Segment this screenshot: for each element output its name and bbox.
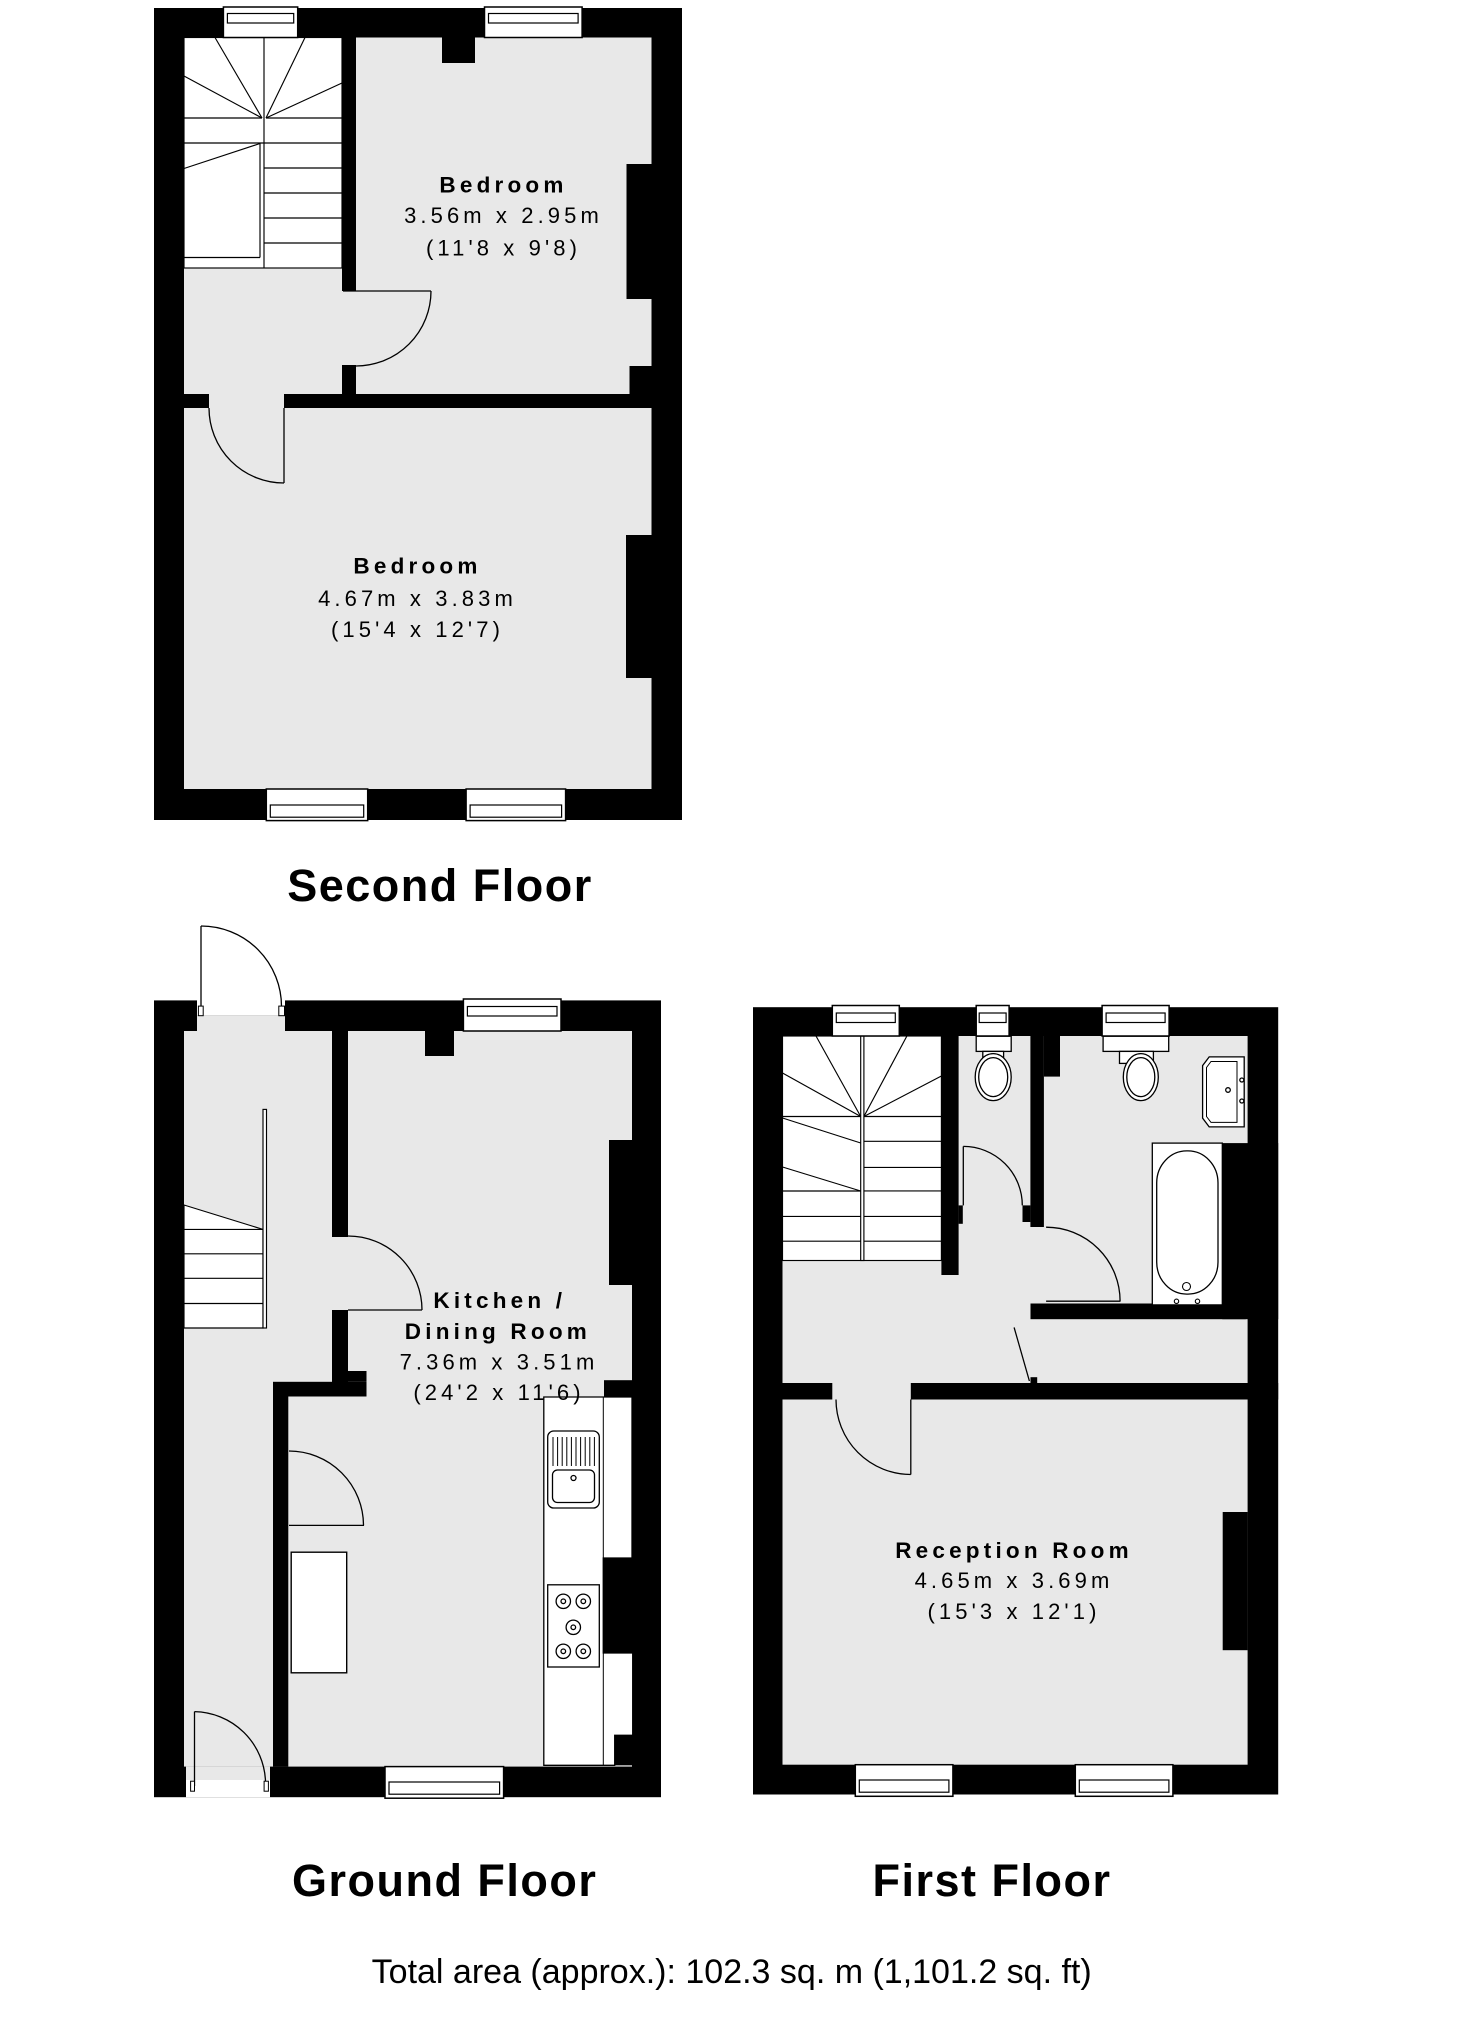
svg-text:Bedroom: Bedroom [439,173,567,198]
svg-text:(24'2 x 11'6): (24'2 x 11'6) [413,1380,584,1405]
svg-text:Reception Room: Reception Room [895,1538,1133,1563]
svg-text:Dining Room: Dining Room [405,1319,591,1344]
svg-text:Ground Floor: Ground Floor [292,1855,597,1906]
svg-text:4.65m x 3.69m: 4.65m x 3.69m [915,1568,1114,1593]
svg-text:Bedroom: Bedroom [353,554,481,579]
svg-text:Total area (approx.): 102.3 sq: Total area (approx.): 102.3 sq. m (1,101… [372,1953,1092,1991]
svg-text:Second Floor: Second Floor [287,860,593,911]
svg-text:(11'8 x 9'8): (11'8 x 9'8) [426,236,581,261]
svg-text:3.56m x 2.95m: 3.56m x 2.95m [404,203,603,228]
svg-text:First Floor: First Floor [873,1855,1112,1906]
svg-text:7.36m x 3.51m: 7.36m x 3.51m [400,1350,599,1375]
svg-text:(15'3 x 12'1): (15'3 x 12'1) [928,1599,1101,1624]
svg-text:(15'4 x 12'7): (15'4 x 12'7) [331,617,504,642]
svg-text:Kitchen /: Kitchen / [433,1288,566,1313]
svg-text:4.67m x 3.83m: 4.67m x 3.83m [318,586,517,611]
